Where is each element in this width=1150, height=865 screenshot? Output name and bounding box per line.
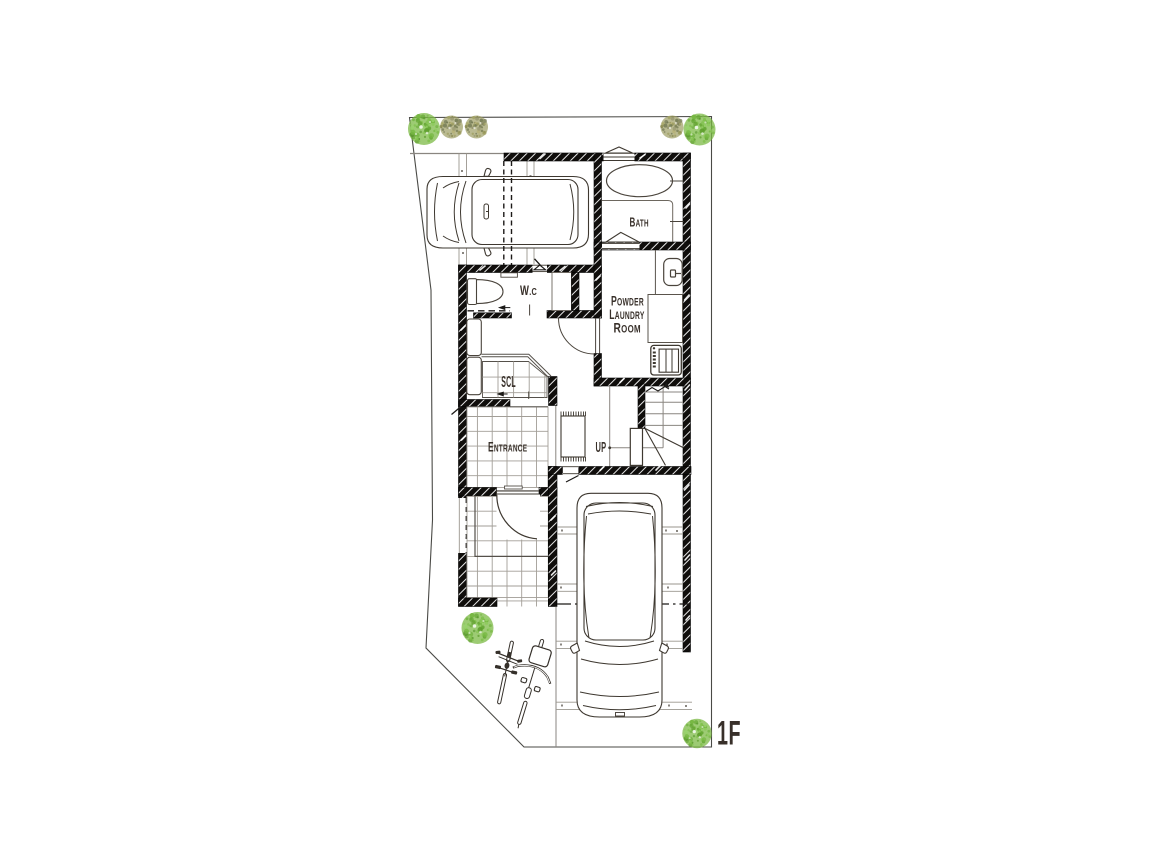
svg-text:ENTRANCE: ENTRANCE xyxy=(488,441,527,455)
svg-text:UP: UP xyxy=(596,438,607,456)
svg-text:ROOM: ROOM xyxy=(614,320,641,336)
svg-text:BATH: BATH xyxy=(630,216,649,230)
svg-text:SCL: SCL xyxy=(501,373,515,391)
svg-text:W.C: W.C xyxy=(520,283,537,298)
svg-text:1F: 1F xyxy=(717,714,741,752)
svg-text:POWDER: POWDER xyxy=(611,293,644,309)
